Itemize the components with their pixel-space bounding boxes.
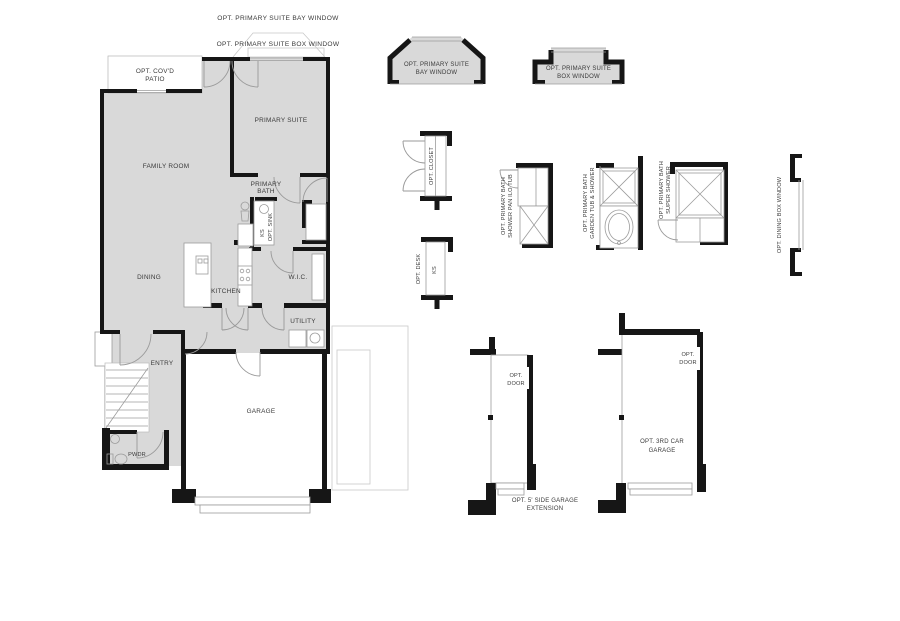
stairs	[105, 363, 149, 432]
room-label-primary-bath-1: PRIMARY	[251, 181, 282, 188]
room-label-patio-2: PATIO	[145, 76, 164, 83]
optional-garage-footprint	[332, 326, 408, 490]
detail-label-shower-pan-2: SHOWER PAN ILO TUB	[508, 174, 514, 238]
detail-label-dining-box: OPT. DINING BOX WINDOW	[777, 176, 783, 253]
detail-box-window: OPT. PRIMARY SUITE BOX WINDOW	[535, 48, 622, 84]
detail-shower-pan: OPT. PRIMARY BATH SHOWER PAN ILO TUB	[500, 163, 553, 248]
detail-label-closet: OPT. CLOSET	[429, 147, 435, 185]
opt-box-window-outline	[248, 48, 324, 57]
opt-door-callout-b	[676, 347, 700, 370]
detail-label-desk: OPT. DESK	[416, 254, 422, 285]
label-ks: KS	[260, 229, 266, 237]
room-label-kitchen: KITCHEN	[211, 288, 241, 295]
water-closet	[306, 204, 326, 240]
room-label-garage: GARAGE	[247, 408, 276, 415]
annotation-bay-window: OPT. PRIMARY SUITE BAY WINDOW	[217, 15, 339, 22]
detail-label-garden-tub-2: GARDEN TUB & SHOWER	[590, 167, 596, 238]
wic-shelf	[312, 254, 324, 300]
detail-third-car-garage: OPT. DOOR OPT. 3RD CAR GARAGE	[598, 313, 706, 513]
room-label-wic: W.I.C.	[289, 274, 308, 281]
detail-label-door-b-1: OPT.	[681, 352, 694, 358]
detail-opt-closet: OPT. CLOSET	[403, 131, 452, 210]
kitchen-island	[184, 243, 211, 307]
room-label-utility: UTILITY	[290, 318, 316, 325]
label-opt-sink: OPT. SINK	[268, 213, 274, 242]
detail-label-third-car-2: GARAGE	[649, 448, 676, 454]
room-label-primary-suite: PRIMARY SUITE	[255, 117, 308, 124]
detail-label-door-a-1: OPT.	[509, 373, 522, 379]
detail-super-shower: OPT. PRIMARY BATH SUPER SHOWER	[658, 161, 728, 242]
room-label-entry: ENTRY	[151, 360, 174, 367]
detail-label-bay-2: BAY WINDOW	[416, 70, 458, 76]
detail-dining-box-window: OPT. DINING BOX WINDOW	[777, 156, 803, 274]
detail-opt-desk: KS OPT. DESK	[416, 237, 453, 309]
garage-area	[186, 354, 322, 490]
floor-plan-page: OPT. PRIMARY SUITE BAY WINDOW OPT. PRIMA…	[0, 0, 900, 621]
detail-garden-tub: OPT. PRIMARY BATH GARDEN TUB & SHOWER	[583, 156, 641, 250]
detail-label-desk-ks: KS	[432, 266, 438, 274]
porch	[95, 332, 112, 366]
detail-label-third-car-1: OPT. 3RD CAR	[640, 439, 684, 445]
room-label-dining: DINING	[137, 274, 161, 281]
detail-label-super-shower-2: SUPER SHOWER	[666, 166, 672, 214]
detail-label-garden-tub-1: OPT. PRIMARY BATH	[583, 174, 589, 232]
fridge	[238, 224, 253, 246]
room-label-primary-bath-2: BATH	[257, 188, 275, 195]
room-label-pwdr: PWDR	[128, 452, 146, 458]
detail-label-door-a-2: DOOR	[507, 381, 524, 387]
room-label-patio-1: OPT. COV'D	[136, 68, 174, 75]
detail-bay-window: OPT. PRIMARY SUITE BAY WINDOW	[390, 37, 483, 84]
room-label-family: FAMILY ROOM	[143, 163, 190, 170]
detail-label-bay-1: OPT. PRIMARY SUITE	[404, 62, 469, 68]
detail-label-box-1: OPT. PRIMARY SUITE	[546, 66, 611, 72]
detail-label-side-ext-2: EXTENSION	[527, 506, 563, 512]
detail-side-garage-extension: OPT. DOOR OPT. 5' SIDE GARAGE EXTENSION	[468, 337, 578, 515]
annotation-box-window: OPT. PRIMARY SUITE BOX WINDOW	[217, 41, 340, 48]
detail-label-super-shower-1: OPT. PRIMARY BATH	[659, 161, 665, 219]
detail-label-shower-pan-1: OPT. PRIMARY BATH	[501, 177, 507, 235]
main-floor-plan: OPT. PRIMARY SUITE BAY WINDOW OPT. PRIMA…	[95, 15, 408, 513]
cooktop	[238, 266, 252, 285]
floor-plan-drawing: OPT. PRIMARY SUITE BAY WINDOW OPT. PRIMA…	[0, 0, 900, 621]
detail-label-side-ext-1: OPT. 5' SIDE GARAGE	[512, 498, 578, 504]
detail-label-box-2: BOX WINDOW	[557, 74, 600, 80]
detail-label-door-b-2: DOOR	[679, 360, 696, 366]
